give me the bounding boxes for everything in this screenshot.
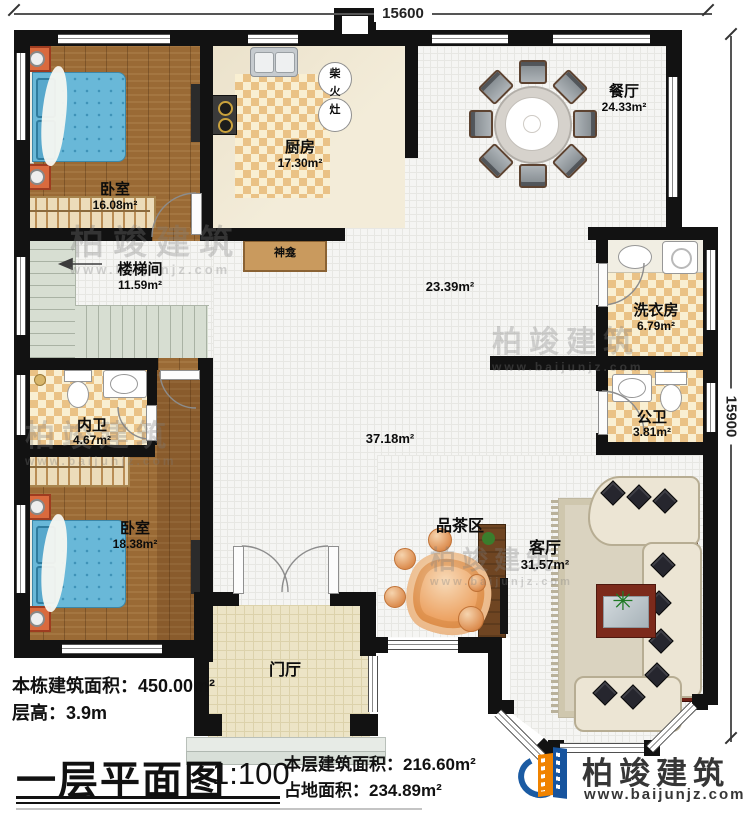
wall <box>14 358 158 370</box>
door-leaf <box>598 391 608 435</box>
wall <box>596 370 608 391</box>
tv-screen <box>500 578 508 634</box>
entry-door-leaf <box>328 546 339 594</box>
window <box>16 505 26 593</box>
window <box>706 250 716 330</box>
total-building-area: 本栋建筑面积：450.00m² <box>12 672 215 698</box>
dining-chair <box>573 110 597 138</box>
window <box>388 640 458 650</box>
tea-stool <box>394 548 416 570</box>
room-label-living: 客厅 <box>500 540 590 558</box>
footprint-area: 占地面积：234.89m² <box>284 776 442 801</box>
stove-char: 火 <box>328 86 342 98</box>
sink-basin <box>275 52 295 73</box>
burner-icon <box>218 101 233 116</box>
wall <box>596 442 705 455</box>
title-underline <box>16 802 280 804</box>
toilet-bowl <box>67 381 89 408</box>
window <box>62 644 162 654</box>
window <box>58 34 170 44</box>
window <box>432 34 508 44</box>
toilet-bowl <box>660 384 682 412</box>
room-area-bedroom1: 16.08m² <box>70 199 160 212</box>
tea-stool <box>468 574 486 592</box>
tea-stool <box>458 606 484 632</box>
hall-area-upper: 23.39m² <box>410 280 490 294</box>
logo-building-icon <box>553 747 567 799</box>
bath-sink <box>618 378 646 398</box>
wall <box>596 305 608 356</box>
wall <box>22 228 152 241</box>
room-label-laundry: 洗衣房 <box>610 303 702 320</box>
window <box>368 656 378 712</box>
dining-chair <box>469 110 493 138</box>
lamp-icon <box>29 611 45 627</box>
window <box>16 375 26 435</box>
window <box>553 34 650 44</box>
door-leaf <box>598 263 608 307</box>
kitchen-floor <box>235 74 330 198</box>
shrine-label: 神龛 <box>253 247 317 259</box>
lamp-icon <box>29 51 45 67</box>
wall <box>205 592 239 606</box>
room-area-dining: 24.33m² <box>582 101 666 114</box>
logo-building-icon <box>538 753 553 797</box>
rug-fringe <box>551 500 558 714</box>
dimension-top-label: 15600 <box>374 5 432 22</box>
wall <box>365 637 388 653</box>
logo-url: www.baijunjz.com <box>584 786 745 803</box>
room-label-tea: 品茶区 <box>415 518 505 536</box>
room-label-stairs: 楼梯间 <box>95 262 185 279</box>
room-label-bedroom1: 卧室 <box>70 182 160 199</box>
dining-chair <box>519 60 547 84</box>
shower-head-icon <box>34 374 46 386</box>
room-label-dining: 餐厅 <box>582 84 666 101</box>
laundry-sink <box>618 245 652 269</box>
stove-char: 柴 <box>328 68 342 80</box>
title-underline-light <box>16 808 422 810</box>
stove-char: 灶 <box>328 104 342 116</box>
washing-machine <box>662 241 698 274</box>
floor-area: 本层建筑面积：216.60m² <box>284 750 476 775</box>
room-area-living: 31.57m² <box>500 558 590 572</box>
room-area-inner-bath: 4.67m² <box>50 434 134 447</box>
logo-window-slits <box>541 758 545 792</box>
wardrobe <box>22 453 130 487</box>
company-logo: 柏竣建筑 www.baijunjz.com <box>516 746 741 810</box>
burner-icon <box>218 118 233 133</box>
wall <box>596 227 608 263</box>
floor-plan: 柴 火 灶 神龛 ✳ <box>0 0 750 817</box>
wall <box>194 714 222 736</box>
room-label-bedroom2: 卧室 <box>90 521 180 538</box>
kitchen-sink <box>250 47 298 77</box>
window <box>16 53 26 140</box>
wall <box>490 356 706 370</box>
window <box>668 77 678 197</box>
room-label-foyer: 门厅 <box>248 662 322 680</box>
room-area-public-bath: 3.81m² <box>612 426 692 439</box>
door-leaf <box>160 370 200 380</box>
door-leaf <box>146 405 157 441</box>
door-leaf <box>191 193 202 235</box>
sink-basin <box>254 52 274 73</box>
dimension-line-top <box>14 13 712 15</box>
lazy-susan <box>523 115 541 133</box>
entry-door-leaf <box>233 546 244 594</box>
window <box>16 257 26 335</box>
wardrobe-rail <box>24 466 124 468</box>
lamp-icon <box>29 499 45 515</box>
window <box>706 383 716 432</box>
plan-scale: 1:100 <box>212 756 290 792</box>
washer-door-icon <box>671 248 692 269</box>
plant-icon: ✳ <box>612 588 634 614</box>
hall-area-lower: 37.18m² <box>350 432 430 446</box>
title-underline <box>16 796 280 799</box>
wall <box>350 714 378 736</box>
dining-chair <box>519 164 547 188</box>
bath-sink <box>110 374 138 394</box>
wall <box>405 46 418 158</box>
stair-flight-bottom <box>75 305 208 358</box>
tea-stool <box>384 586 406 608</box>
lamp-icon <box>29 169 45 185</box>
room-area-stairs: 11.59m² <box>95 279 185 292</box>
room-area-kitchen: 17.30m² <box>258 157 342 170</box>
cooktop <box>211 95 237 135</box>
wall <box>200 228 345 241</box>
room-area-bedroom2: 18.38m² <box>90 538 180 551</box>
door-opening-patch <box>158 358 198 370</box>
window <box>248 34 298 44</box>
logo-window-slits <box>556 753 560 791</box>
floor-height: 层高：3.9m <box>12 699 107 725</box>
room-area-laundry: 6.79m² <box>610 320 702 333</box>
room-label-kitchen: 厨房 <box>258 140 342 157</box>
tv-panel <box>191 540 200 594</box>
wall <box>147 360 157 405</box>
tv-panel <box>191 84 200 142</box>
dimension-right-label: 15900 <box>723 389 740 445</box>
